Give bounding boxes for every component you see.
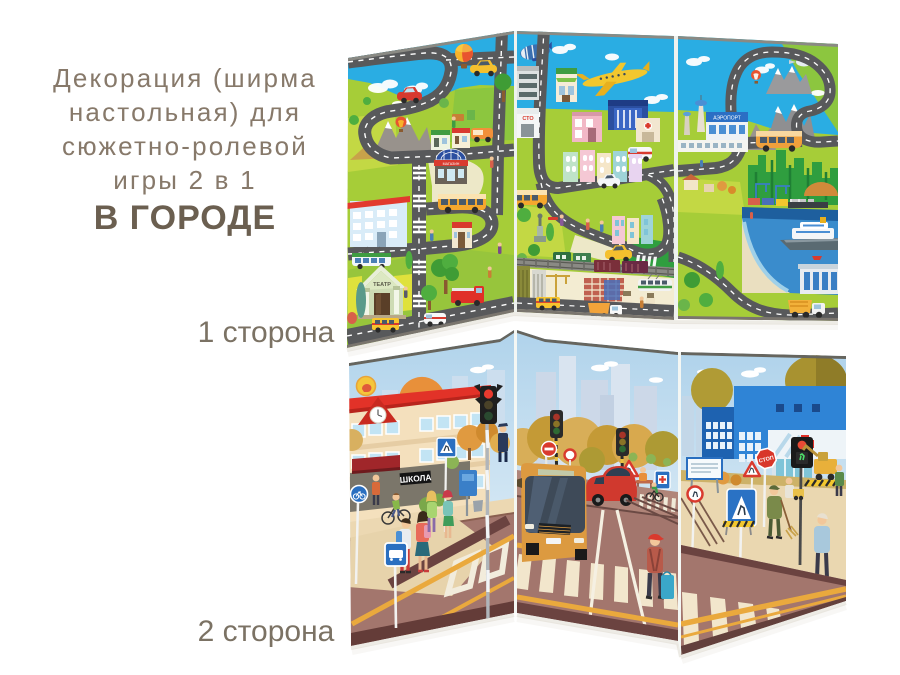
- svg-text:2 сторона: 2 сторона: [198, 615, 335, 648]
- svg-text:СТО: СТО: [522, 116, 534, 122]
- svg-text:МАГАЗИН: МАГАЗИН: [443, 162, 460, 166]
- svg-text:1 сторона: 1 сторона: [198, 316, 335, 349]
- svg-text:сюжетно-ролевой: сюжетно-ролевой: [62, 131, 308, 161]
- svg-text:Декорация (ширма: Декорация (ширма: [53, 63, 317, 93]
- svg-text:ТЕАТР: ТЕАТР: [373, 282, 391, 288]
- svg-text:В ГОРОДЕ: В ГОРОДЕ: [94, 199, 276, 237]
- svg-text:игры 2 в 1: игры 2 в 1: [113, 165, 257, 195]
- svg-text:настольная) для: настольная) для: [69, 97, 301, 127]
- svg-text:АЭРОПОРТ: АЭРОПОРТ: [713, 116, 741, 122]
